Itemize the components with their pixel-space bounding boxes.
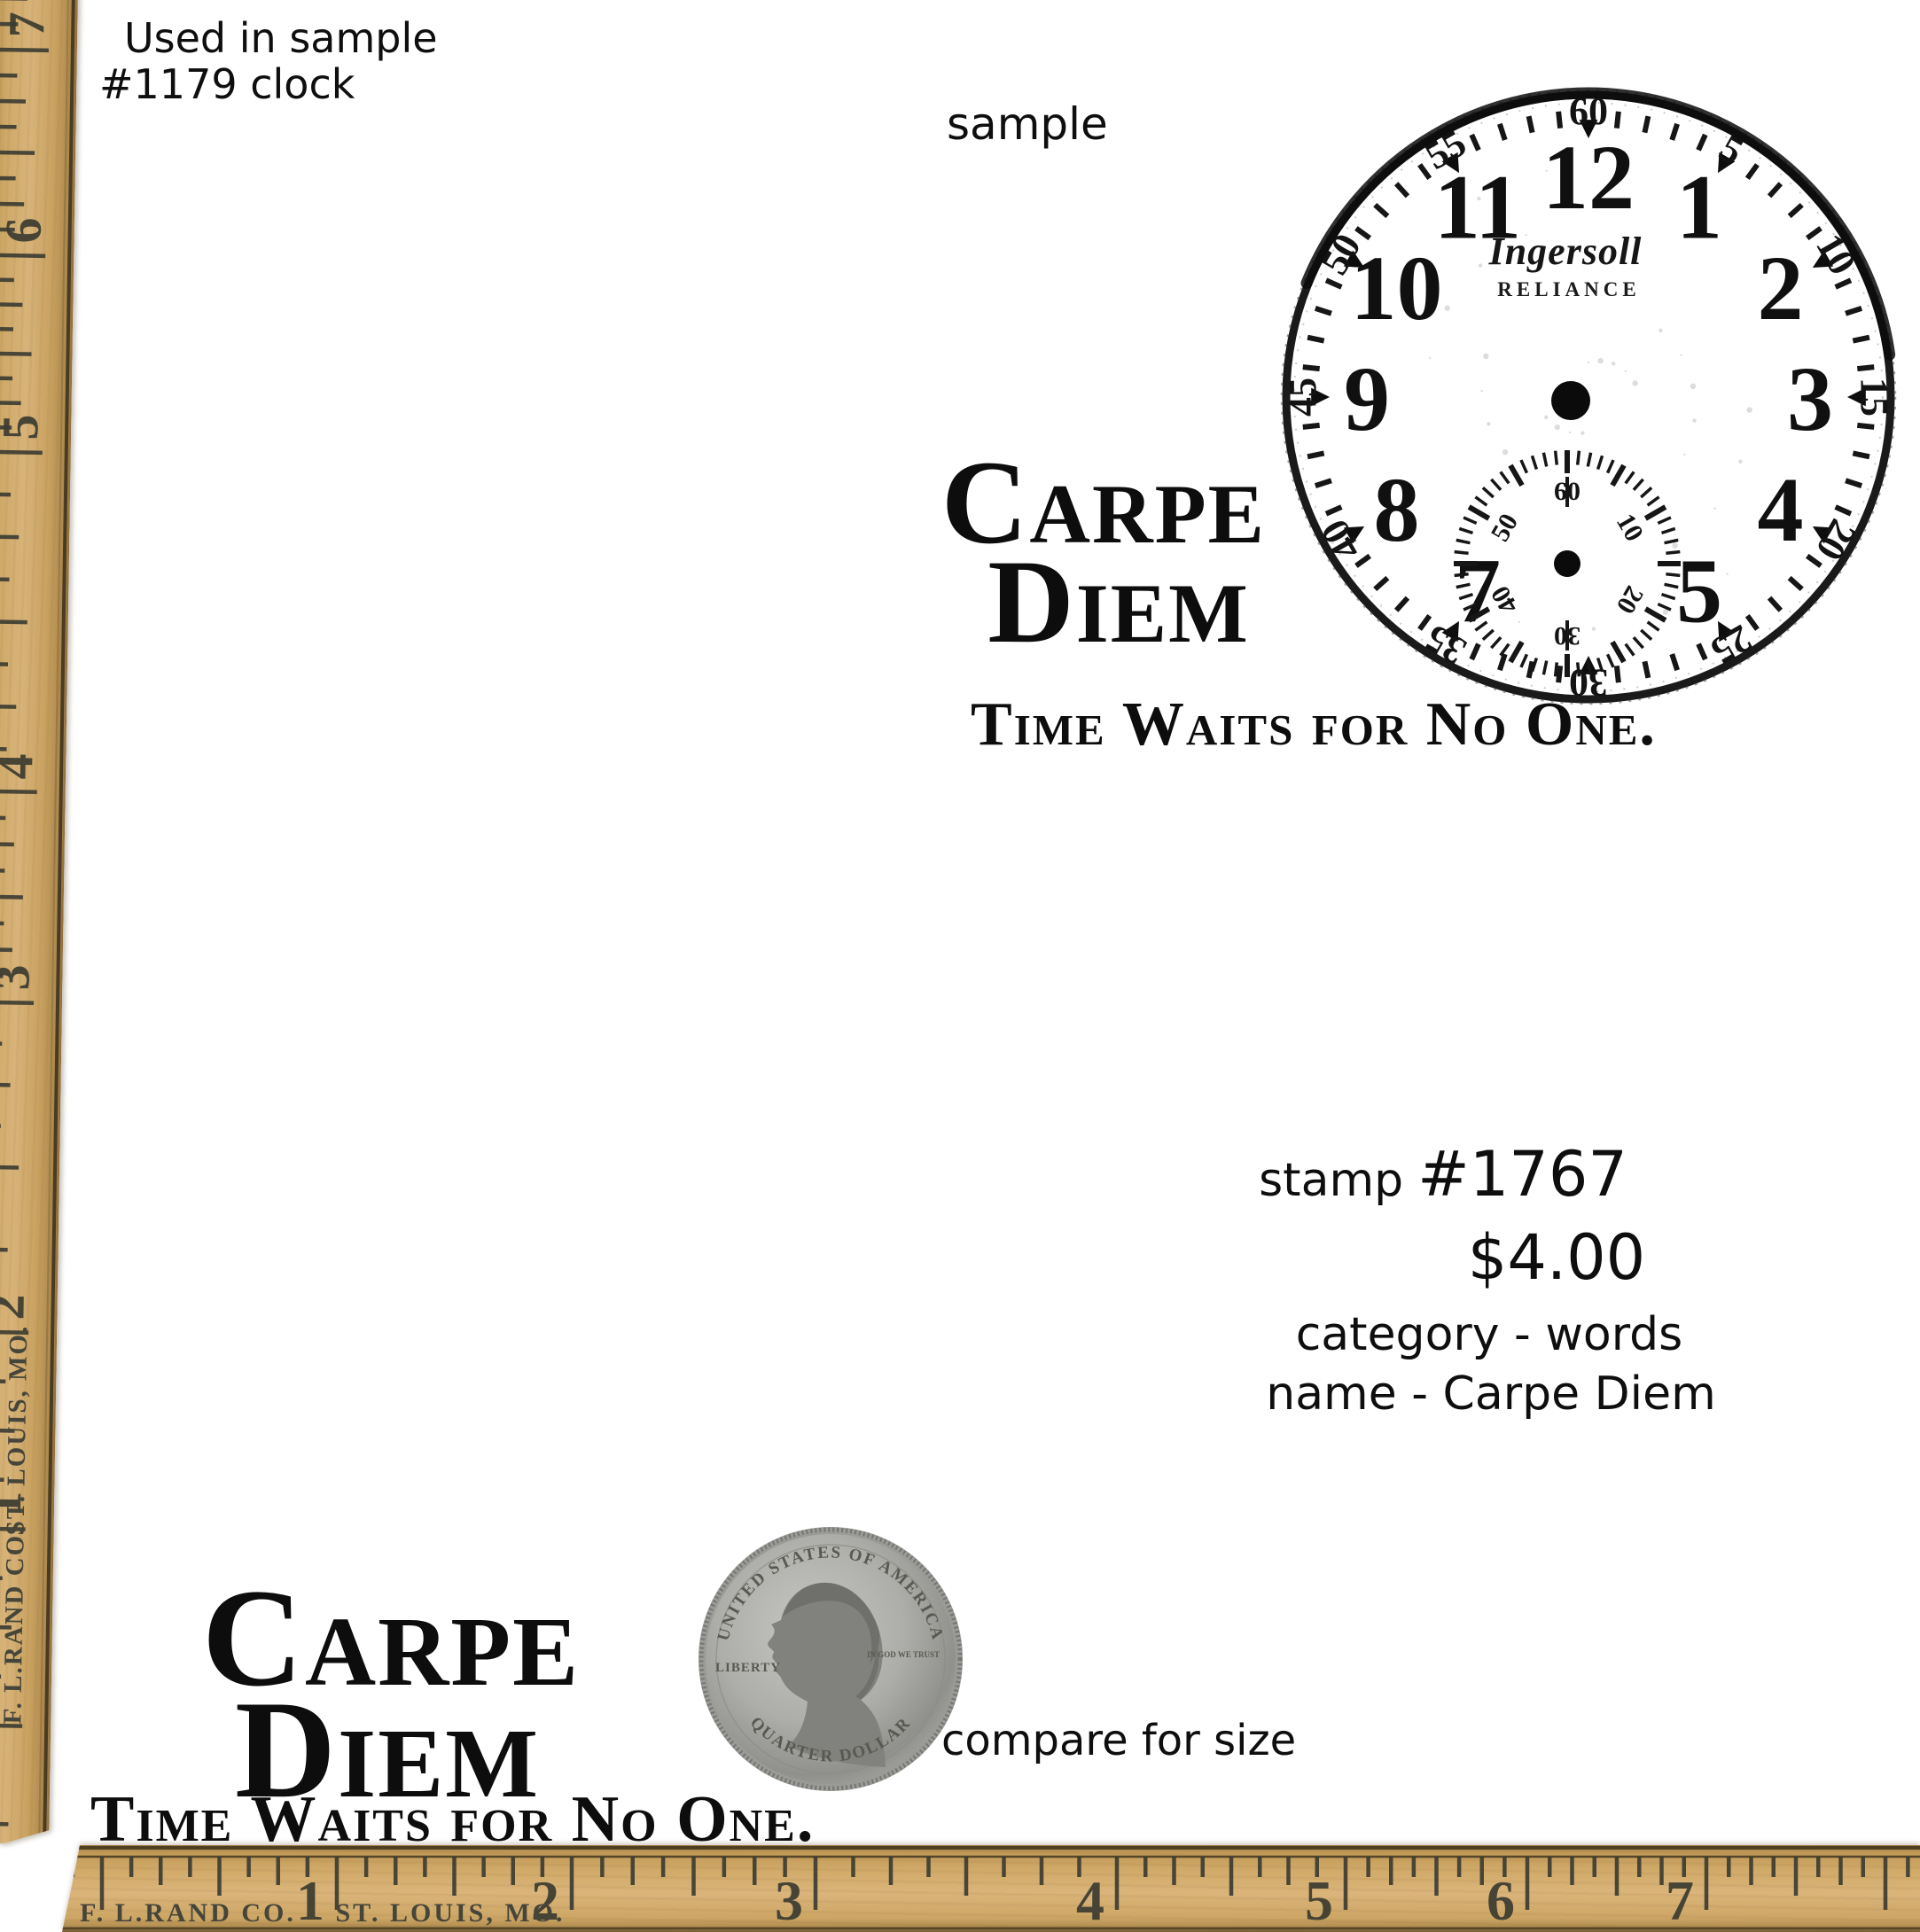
svg-text:3: 3 xyxy=(0,964,41,991)
svg-text:6: 6 xyxy=(0,217,52,244)
svg-text:5: 5 xyxy=(0,414,49,440)
svg-text:9: 9 xyxy=(1344,348,1390,450)
sample-label: sample xyxy=(947,99,1108,149)
product-listing-image: Used in sample #1179 clock sample 605101… xyxy=(0,0,1920,1932)
stamp-image-tagline: Time Waits for No One. xyxy=(90,1787,711,1852)
coin-motto-text: IN GOD WE TRUST xyxy=(867,1650,940,1659)
svg-text:7: 7 xyxy=(0,12,56,38)
svg-text:1: 1 xyxy=(296,1869,324,1932)
svg-text:2: 2 xyxy=(0,1294,35,1320)
svg-text:5: 5 xyxy=(1305,1869,1333,1932)
svg-text:6: 6 xyxy=(1487,1869,1515,1932)
coin-liberty-text: LIBERTY xyxy=(715,1661,781,1675)
stamp-number-line: stamp#1767 xyxy=(1089,1138,1798,1211)
svg-text:3: 3 xyxy=(775,1869,803,1932)
svg-text:2: 2 xyxy=(1758,238,1804,339)
compare-for-size-label: compare for size xyxy=(941,1718,1296,1765)
svg-text:4: 4 xyxy=(1076,1869,1104,1932)
quarter-coin-image: UNITED STATES OF AMERICA QUARTER DOLLAR … xyxy=(689,1517,972,1801)
svg-text:3: 3 xyxy=(1787,348,1833,450)
sample-stamp-tagline: Time Waits for No One. xyxy=(971,694,1591,756)
price-label: $4.00 xyxy=(1202,1221,1911,1294)
svg-text:4: 4 xyxy=(0,753,43,780)
svg-text:45: 45 xyxy=(1281,378,1324,417)
left-ruler-maker-text: F. L.RAND CO. xyxy=(0,1525,30,1724)
left-ruler-city-text: ST. LOUIS, MO. xyxy=(2,1324,34,1535)
svg-text:10: 10 xyxy=(1350,238,1442,339)
svg-text:15: 15 xyxy=(1853,378,1896,417)
bottom-ruler-maker-text: F. L.RAND CO. xyxy=(80,1898,296,1928)
used-in-sample-caption-line1: Used in sample xyxy=(124,16,438,62)
bottom-ruler-city-text: ST. LOUIS, MO. xyxy=(336,1898,566,1928)
svg-text:12: 12 xyxy=(1542,127,1635,229)
category-line: category - words xyxy=(1135,1308,1844,1361)
stamp-number: #1767 xyxy=(1417,1138,1627,1211)
vertical-ruler: 7654321 ST. LOUIS, MO. F. L.RAND CO. xyxy=(0,0,78,1849)
stamp-label: stamp xyxy=(1259,1154,1403,1207)
horizontal-ruler: 1234567 F. L.RAND CO. ST. LOUIS, MO. xyxy=(53,1845,1920,1932)
watch-model: RELIANCE xyxy=(1497,278,1640,300)
svg-text:4: 4 xyxy=(1758,459,1804,561)
svg-text:5: 5 xyxy=(1676,541,1722,643)
svg-text:1: 1 xyxy=(1676,156,1722,258)
name-line: name - Carpe Diem xyxy=(1136,1367,1846,1421)
sample-stamp-diem: Diem xyxy=(853,542,1385,662)
svg-text:60: 60 xyxy=(1554,477,1580,506)
watch-brand: Ingersoll xyxy=(1488,230,1643,273)
svg-text:7: 7 xyxy=(1666,1869,1694,1932)
svg-text:30: 30 xyxy=(1554,621,1580,650)
used-in-sample-caption-line2: #1179 clock xyxy=(99,62,355,108)
